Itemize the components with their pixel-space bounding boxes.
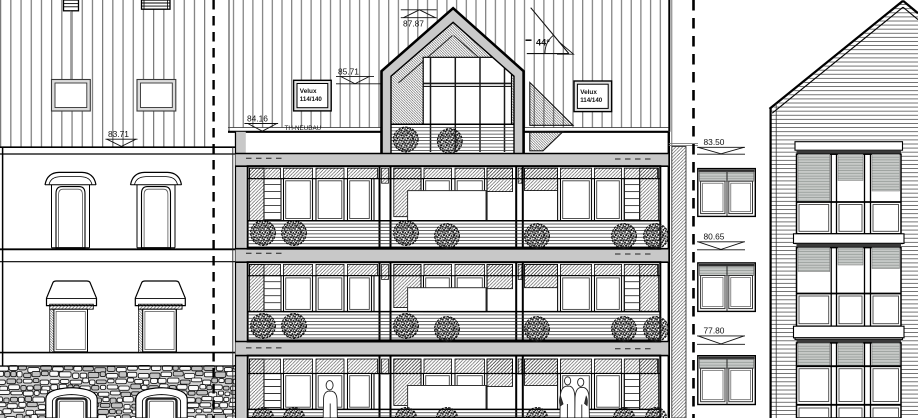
svg-text:TH-NEUBAU: TH-NEUBAU: [285, 125, 322, 132]
svg-text:44°: 44°: [536, 37, 550, 47]
svg-text:83.71: 83.71: [108, 129, 129, 139]
svg-text:77.80: 77.80: [704, 326, 725, 336]
svg-text:114/140: 114/140: [300, 96, 323, 103]
svg-text:Velux: Velux: [580, 89, 597, 96]
svg-text:80.65: 80.65: [704, 231, 725, 241]
svg-text:87.87: 87.87: [403, 18, 424, 28]
svg-text:Velux: Velux: [300, 88, 317, 95]
svg-text:114/140: 114/140: [580, 97, 603, 104]
svg-text:85.71: 85.71: [338, 66, 359, 76]
svg-text:83.50: 83.50: [704, 137, 725, 147]
svg-text:84.16: 84.16: [247, 114, 268, 124]
